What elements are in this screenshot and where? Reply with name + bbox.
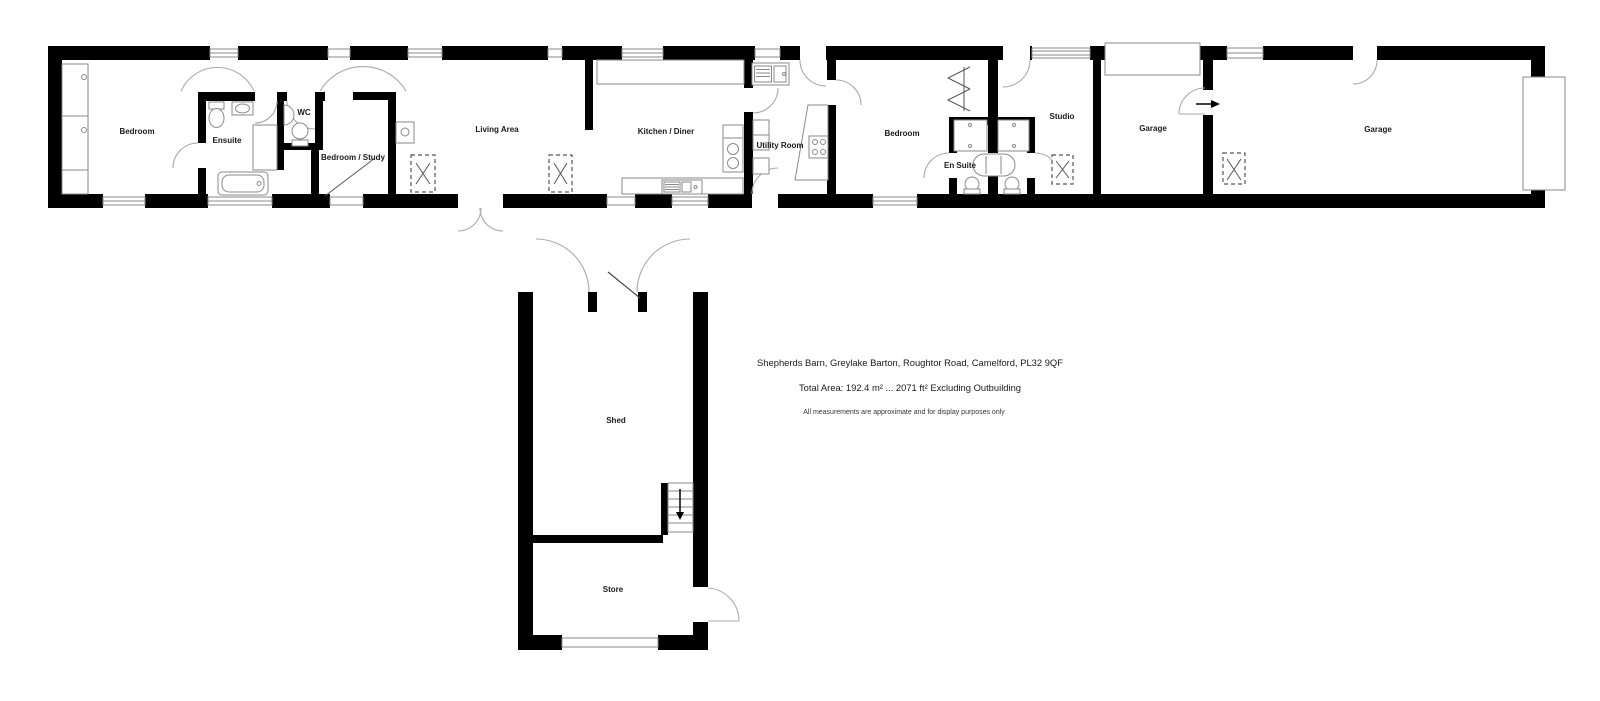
ensuite1-fixtures — [209, 102, 277, 195]
closet-icon — [948, 67, 970, 111]
room-label-shed: Shed — [606, 416, 626, 425]
shed-walls — [518, 292, 708, 650]
stove-icon — [396, 122, 414, 143]
room-label-bedroom2: Bedroom — [884, 129, 919, 138]
room-label-store: Store — [603, 585, 624, 594]
double-sink-icon — [973, 154, 1015, 176]
arrow-right-icon — [1211, 100, 1220, 108]
room-label-ensuite1: Ensuite — [213, 136, 242, 145]
counter — [597, 60, 744, 84]
toilet-icon — [964, 177, 980, 194]
room-label-ensuite2: En Suite — [944, 161, 977, 170]
utility-fixtures — [752, 63, 828, 180]
shed-window — [562, 638, 658, 647]
room-label-utility-room: Utility Room — [756, 141, 803, 150]
room-label-bedroom1: Bedroom — [119, 127, 154, 136]
bath-icon — [218, 172, 268, 195]
floorplan-svg: Bedroom Ensuite WC Bedroom / Study Livin… — [0, 0, 1600, 701]
total-area-line: Total Area: 192.4 m² ... 2071 ft² Exclud… — [799, 382, 1021, 393]
cupboard-icon — [253, 125, 277, 170]
sloped-ceiling-line — [325, 158, 375, 196]
garage-door-arrow — [1179, 88, 1220, 114]
shed-double-doors — [536, 239, 690, 298]
main-building: Bedroom Ensuite WC Bedroom / Study Livin… — [48, 43, 1565, 231]
shower-icon — [954, 120, 987, 151]
room-label-living-area: Living Area — [475, 125, 519, 134]
address-line: Shepherds Barn, Greylake Barton, Roughto… — [757, 357, 1063, 368]
disclaimer-line: All measurements are approximate and for… — [803, 409, 1005, 416]
stairs-icon — [668, 483, 693, 532]
cooker-icon — [723, 125, 743, 172]
rooflight-icon — [549, 155, 572, 192]
room-label-wc: WC — [297, 108, 311, 117]
rooflight-icon — [411, 155, 435, 192]
floorplan-page: Bedroom Ensuite WC Bedroom / Study Livin… — [0, 0, 1600, 701]
appliance-icon — [753, 120, 769, 135]
garage1-door-icon — [1105, 43, 1200, 75]
room-label-garage2: Garage — [1364, 125, 1392, 134]
store-door — [708, 588, 739, 621]
room-label-kitchen-diner: Kitchen / Diner — [638, 127, 694, 136]
kitchen-sink-icon — [662, 180, 702, 194]
room-label-garage1: Garage — [1139, 124, 1167, 133]
utility-sink-icon — [752, 63, 789, 85]
shower-icon — [998, 120, 1029, 151]
rooflight-icon — [1052, 155, 1073, 184]
outbuilding: Shed Store — [518, 239, 739, 650]
toilet-icon — [1004, 177, 1020, 194]
sink-icon — [284, 105, 294, 125]
toilet-icon — [209, 102, 224, 128]
room-label-studio: Studio — [1050, 112, 1075, 121]
rooflight-icon — [1223, 153, 1245, 184]
appliance-icon — [753, 158, 769, 174]
room-label-bedroom-study: Bedroom / Study — [321, 153, 386, 162]
wardrobe-icon — [62, 64, 88, 194]
footer-text: Shepherds Barn, Greylake Barton, Roughto… — [757, 357, 1063, 416]
sink-icon — [232, 102, 253, 115]
toilet-icon — [292, 123, 308, 146]
garage2-door-icon — [1523, 77, 1565, 190]
